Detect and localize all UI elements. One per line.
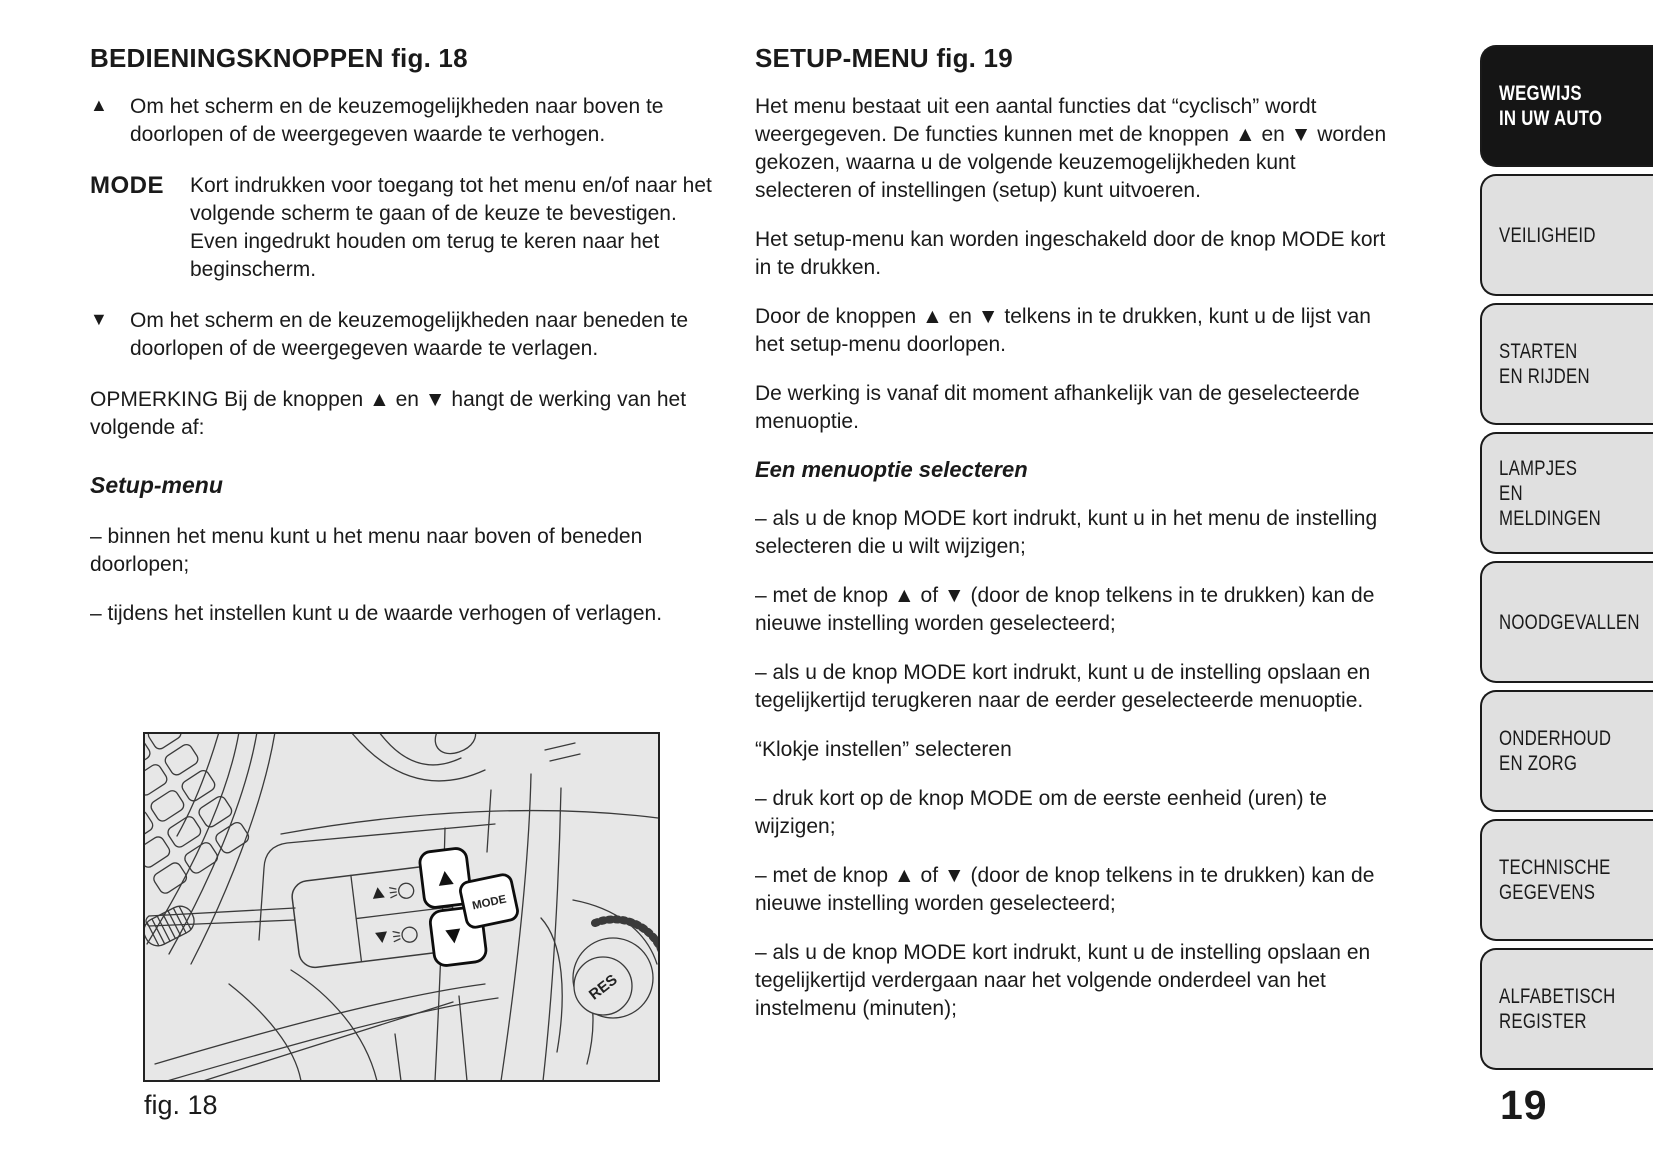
- manual-page: BEDIENINGSKNOPPEN fig. 18 ▲ Om het scher…: [0, 0, 1653, 1165]
- tab-veiligheid: VEILIGHEID: [1480, 174, 1653, 296]
- right-para-2: Het setup-menu kan worden ingeschakeld d…: [755, 226, 1389, 282]
- clock-set-subheading: “Klokje instellen” selecteren: [755, 736, 1389, 764]
- tab-alfabetisch-register: ALFABETISCH REGISTER: [1480, 948, 1653, 1070]
- control-item-down-text: Om het scherm en de keuzemogelijkheden n…: [130, 307, 722, 363]
- mode-label: MODE: [90, 172, 190, 284]
- right-bullet-1: – als u de knop MODE kort indrukt, kunt …: [755, 505, 1389, 561]
- right-column: SETUP-MENU fig. 19 Het menu bestaat uit …: [755, 44, 1389, 1044]
- right-bullet-6: – als u de knop MODE kort indrukt, kunt …: [755, 939, 1389, 1023]
- left-column: BEDIENINGSKNOPPEN fig. 18 ▲ Om het scher…: [90, 44, 722, 649]
- left-bullet-2: – tijdens het instellen kunt u de waarde…: [90, 600, 722, 628]
- tab-technische-gegevens: TECHNISCHE GEGEVENS: [1480, 819, 1653, 941]
- control-item-up: ▲ Om het scherm en de keuzemogelijkheden…: [90, 93, 722, 149]
- control-item-up-text: Om het scherm en de keuzemogelijkheden n…: [130, 93, 722, 149]
- setup-menu-subheading: Setup-menu: [90, 472, 722, 499]
- up-triangle-icon: ▲: [90, 93, 130, 149]
- mode-button: MODE: [459, 873, 519, 929]
- page-number: 19: [1500, 1082, 1548, 1129]
- down-triangle-icon: ▼: [90, 307, 130, 363]
- control-item-mode-text: Kort indrukken voor toegang tot het menu…: [190, 172, 722, 284]
- figure-18-illustration: RES MODE: [143, 732, 660, 1082]
- tab-lampjes-en-meldingen: LAMPJES EN MELDINGEN: [1480, 432, 1653, 554]
- right-bullet-4: – druk kort op de knop MODE om de eerste…: [755, 785, 1389, 841]
- right-heading: SETUP-MENU fig. 19: [755, 44, 1389, 73]
- tab-noodgevallen: NOODGEVALLEN: [1480, 561, 1653, 683]
- right-para-4: De werking is vanaf dit moment afhankeli…: [755, 380, 1389, 436]
- right-para-3: Door de knoppen ▲ en ▼ telkens in te dru…: [755, 303, 1389, 359]
- right-bullet-5: – met de knop ▲ of ▼ (door de knop telke…: [755, 862, 1389, 918]
- tab-wegwijs-in-uw-auto: WEGWIJS IN UW AUTO: [1480, 45, 1653, 167]
- tab-starten-en-rijden: STARTEN EN RIJDEN: [1480, 303, 1653, 425]
- figure-frame: [144, 733, 659, 1081]
- figure-caption: fig. 18: [144, 1090, 218, 1121]
- left-bullet-1: – binnen het menu kunt u het menu naar b…: [90, 523, 722, 579]
- right-bullet-2: – met de knop ▲ of ▼ (door de knop telke…: [755, 582, 1389, 638]
- right-bullet-3: – als u de knop MODE kort indrukt, kunt …: [755, 659, 1389, 715]
- control-item-mode: MODE Kort indrukken voor toegang tot het…: [90, 172, 722, 284]
- control-item-down: ▼ Om het scherm en de keuzemogelijkheden…: [90, 307, 722, 363]
- left-heading: BEDIENINGSKNOPPEN fig. 18: [90, 44, 722, 73]
- right-para-1: Het menu bestaat uit een aantal functies…: [755, 93, 1389, 205]
- select-option-subheading: Een menuoptie selecteren: [755, 457, 1389, 483]
- dashboard-controls-drawing: RES MODE: [143, 732, 660, 1082]
- note-paragraph: OPMERKING Bij de knoppen ▲ en ▼ hangt de…: [90, 386, 722, 442]
- tab-onderhoud-en-zorg: ONDERHOUD EN ZORG: [1480, 690, 1653, 812]
